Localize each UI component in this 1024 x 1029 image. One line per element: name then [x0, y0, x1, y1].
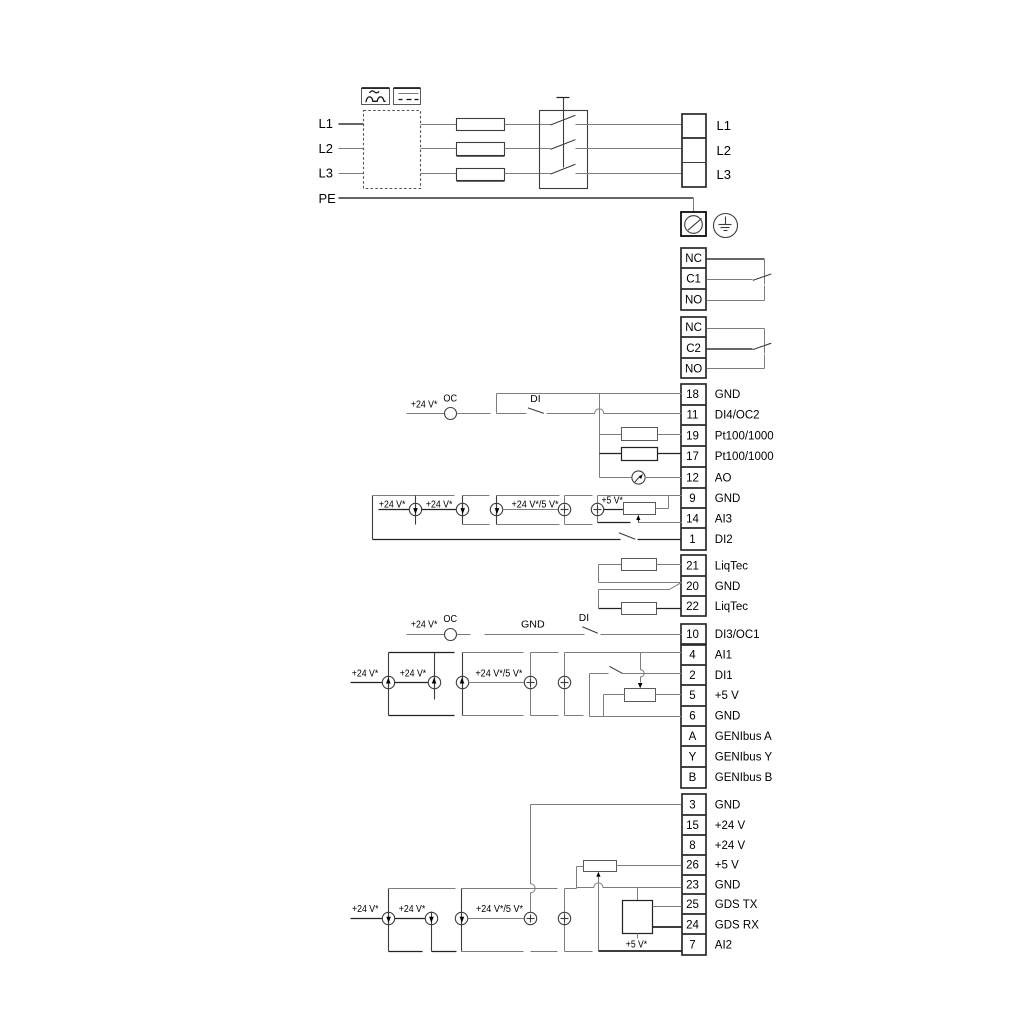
svg-text:GND: GND	[521, 620, 545, 631]
svg-text:NC: NC	[685, 322, 702, 334]
svg-text:DI1: DI1	[715, 670, 733, 682]
svg-text:AI3: AI3	[715, 513, 732, 525]
svg-text:+24 V*: +24 V*	[399, 904, 426, 915]
svg-text:L2: L2	[319, 141, 333, 156]
svg-text:17: 17	[686, 451, 699, 463]
svg-text:C2: C2	[686, 343, 701, 355]
svg-text:6: 6	[689, 711, 695, 723]
svg-text:4: 4	[689, 650, 696, 662]
svg-text:25: 25	[686, 899, 699, 911]
svg-text:AO: AO	[715, 472, 732, 484]
svg-text:22: 22	[686, 601, 699, 613]
svg-text:L2: L2	[717, 143, 731, 158]
svg-text:DI3/OC1: DI3/OC1	[715, 629, 760, 641]
svg-text:DI2: DI2	[715, 534, 733, 546]
svg-text:21: 21	[686, 560, 699, 572]
svg-text:LiqTec: LiqTec	[715, 601, 748, 613]
svg-text:GDS RX: GDS RX	[715, 919, 759, 931]
svg-text:11: 11	[687, 410, 699, 422]
svg-text:GND: GND	[715, 879, 741, 891]
svg-text:+5 V: +5 V	[715, 860, 739, 872]
svg-text:3: 3	[689, 800, 695, 812]
svg-text:+24 V*: +24 V*	[352, 668, 379, 679]
svg-text:20: 20	[686, 581, 699, 593]
svg-text:L3: L3	[717, 167, 731, 182]
svg-text:GND: GND	[715, 493, 741, 505]
svg-text:18: 18	[686, 389, 699, 401]
svg-text:C1: C1	[686, 274, 701, 286]
svg-text:AI1: AI1	[715, 650, 732, 662]
svg-text:L3: L3	[319, 165, 333, 180]
svg-text:+24 V*: +24 V*	[379, 499, 406, 510]
svg-text:GENIbus B: GENIbus B	[715, 772, 773, 784]
svg-text:26: 26	[686, 860, 699, 872]
svg-text:19: 19	[686, 431, 699, 443]
svg-text:9: 9	[689, 493, 695, 505]
svg-text:OC: OC	[443, 394, 457, 405]
svg-text:+5 V: +5 V	[715, 690, 739, 702]
svg-text:B: B	[689, 772, 697, 784]
svg-text:GND: GND	[715, 581, 741, 593]
svg-text:L1: L1	[717, 118, 731, 133]
svg-text:5: 5	[689, 690, 695, 702]
svg-text:Pt100/1000: Pt100/1000	[715, 431, 774, 443]
svg-text:NO: NO	[685, 294, 702, 306]
svg-text:Pt100/1000: Pt100/1000	[715, 451, 774, 463]
svg-text:GDS TX: GDS TX	[715, 899, 758, 911]
svg-text:Y: Y	[689, 752, 697, 764]
svg-text:GENIbus A: GENIbus A	[715, 731, 772, 743]
svg-text:DI: DI	[579, 613, 589, 624]
svg-text:+5 V*: +5 V*	[602, 495, 623, 506]
svg-text:+24 V*/5 V*: +24 V*/5 V*	[476, 904, 523, 915]
svg-text:A: A	[689, 731, 697, 743]
svg-text:1: 1	[689, 534, 695, 546]
svg-text:+24 V: +24 V	[715, 820, 746, 832]
svg-text:AI2: AI2	[715, 940, 732, 952]
svg-text:GND: GND	[715, 389, 741, 401]
svg-text:2: 2	[689, 670, 695, 682]
svg-text:OC: OC	[443, 614, 457, 625]
svg-text:NC: NC	[685, 253, 702, 265]
svg-text:15: 15	[686, 820, 699, 832]
svg-text:L1: L1	[319, 116, 333, 131]
svg-text:+24 V*/5 V*: +24 V*/5 V*	[512, 499, 559, 510]
svg-text:14: 14	[686, 513, 699, 525]
svg-text:7: 7	[689, 940, 695, 952]
svg-text:+5 V*: +5 V*	[626, 940, 647, 951]
svg-text:DI4/OC2: DI4/OC2	[715, 410, 760, 422]
svg-text:+24 V*: +24 V*	[411, 620, 438, 631]
svg-text:10: 10	[686, 629, 699, 641]
svg-text:GND: GND	[715, 711, 741, 723]
svg-text:GND: GND	[715, 800, 741, 812]
svg-text:+24 V*: +24 V*	[411, 399, 438, 410]
svg-text:LiqTec: LiqTec	[715, 560, 748, 572]
svg-text:NO: NO	[685, 364, 702, 376]
svg-text:GENIbus Y: GENIbus Y	[715, 752, 773, 764]
svg-text:12: 12	[686, 472, 699, 484]
svg-text:PE: PE	[319, 191, 337, 206]
svg-text:23: 23	[686, 879, 699, 891]
svg-text:+24 V: +24 V	[715, 840, 746, 852]
svg-text:DI: DI	[530, 394, 540, 405]
svg-text:+24 V*: +24 V*	[426, 499, 453, 510]
svg-text:+24 V*: +24 V*	[400, 668, 427, 679]
svg-text:24: 24	[686, 919, 699, 931]
svg-text:+24 V*/5 V*: +24 V*/5 V*	[475, 668, 522, 679]
svg-text:+24 V*: +24 V*	[352, 904, 379, 915]
svg-text:8: 8	[689, 840, 695, 852]
